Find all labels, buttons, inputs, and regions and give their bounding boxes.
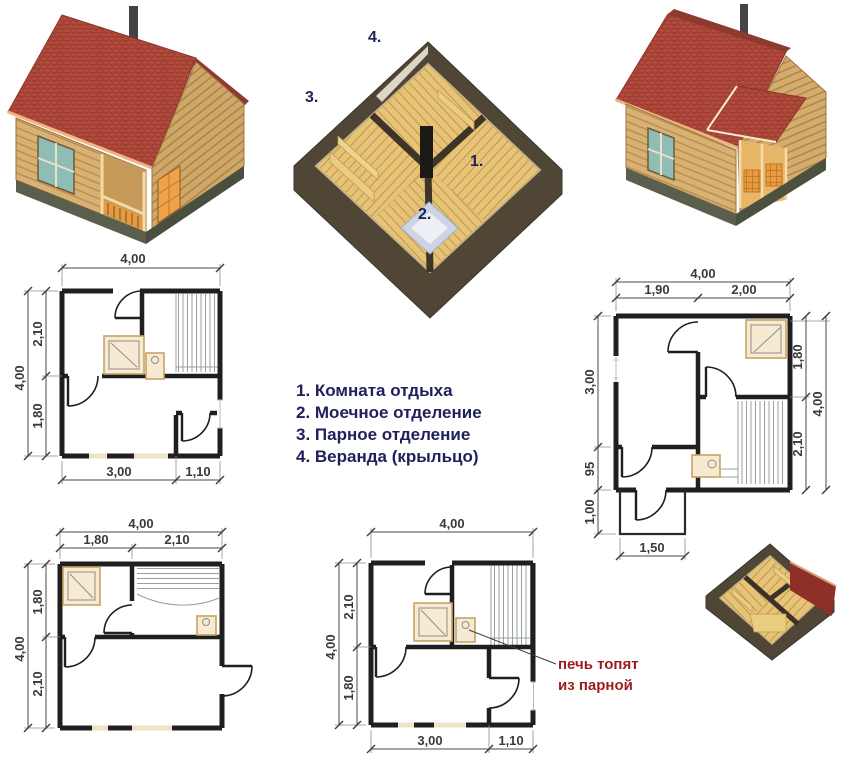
bench-hatch (491, 565, 531, 645)
dim-label: 3,00 (106, 464, 131, 479)
dim-label: 4,00 (439, 516, 464, 531)
stove-icon (197, 616, 216, 635)
dim-label: 4,00 (128, 516, 153, 531)
door (65, 637, 95, 667)
label-veranda: 4. (368, 29, 381, 46)
dim-label: 4,00 (326, 634, 338, 659)
chimney-column (420, 126, 433, 178)
label-steam-room: 3. (305, 89, 318, 106)
window (648, 128, 674, 180)
dim-label: 95 (582, 462, 597, 476)
label-wash-room: 2. (418, 206, 431, 223)
stove-note-line1: печь топят (558, 656, 639, 673)
exterior-door (222, 666, 252, 696)
door (376, 647, 406, 677)
dim-label: 1,90 (644, 282, 669, 297)
door (668, 322, 698, 352)
legend-item: 2. Моечное отделение (296, 402, 482, 424)
dim-label: 2,10 (790, 431, 805, 456)
door (115, 291, 142, 318)
bench-hatch (176, 294, 218, 372)
shower-icon (414, 603, 452, 641)
bench-hatch (738, 401, 784, 484)
legend-item: 4. Веранда (крыльцо) (296, 446, 482, 468)
label-rest-room: 1. (470, 153, 483, 170)
door (104, 605, 132, 633)
dim-label: 3,00 (417, 733, 442, 748)
dim-label: 4,00 (690, 266, 715, 281)
dim-label: 4,00 (12, 365, 27, 390)
floorplan-variant-4: 4,00 2,10 4,00 1,80 3,00 1,10 печь топят… (326, 514, 671, 773)
door (622, 447, 652, 477)
dim-label: 1,80 (790, 344, 805, 369)
dim-label: 2,00 (731, 282, 756, 297)
house-render-left (2, 2, 267, 247)
dim-label: 1,10 (185, 464, 210, 479)
stove-icon (692, 455, 720, 477)
shower-icon (746, 320, 786, 358)
dim-label: 2,10 (30, 321, 45, 346)
stove-note-line2: из парной (558, 677, 633, 694)
shower-icon (104, 336, 144, 374)
dim-label: 1,80 (30, 403, 45, 428)
stove-icon (146, 353, 164, 379)
dim-label: 1,10 (498, 733, 523, 748)
dim-label: 1,80 (83, 532, 108, 547)
floorplan-variant-1: 4,00 4,00 2,10 1,80 3,00 1,10 (10, 248, 250, 508)
dim-label: 4,00 (810, 391, 825, 416)
dim-label: 4,00 (12, 636, 27, 661)
dim-label: 1,80 (30, 589, 45, 614)
cutaway-3d-view: 4. 3. 1. 2. (278, 6, 578, 321)
stove-icon (456, 618, 475, 642)
dim-label: 4,00 (120, 251, 145, 266)
legend-item: 1. Комната отдыха (296, 380, 482, 402)
exterior-door-gap (217, 400, 223, 428)
mini-cutaway-3d (694, 536, 846, 666)
exterior-door-gap (531, 682, 537, 710)
bathhouse-plans-sheet: 4. 3. 1. 2. (0, 0, 850, 773)
dim-label: 2,10 (30, 671, 45, 696)
door (489, 678, 519, 708)
dim-label: 2,10 (164, 532, 189, 547)
house-render-right (590, 2, 845, 234)
floorplan-variant-3: 4,00 1,80 2,10 1,80 4,00 2,10 (10, 516, 260, 772)
door (706, 367, 736, 397)
door (182, 413, 210, 441)
bench-hatch (137, 567, 219, 591)
room-legend: 1. Комната отдыха 2. Моечное отделение 3… (296, 380, 482, 468)
dim-label: 2,10 (341, 594, 356, 619)
door (425, 567, 452, 594)
dim-label: 1,80 (341, 675, 356, 700)
door (68, 376, 98, 406)
legend-item: 3. Парное отделение (296, 424, 482, 446)
shower-icon (63, 567, 100, 605)
dim-label: 3,00 (582, 369, 597, 394)
window-gap (614, 356, 619, 382)
